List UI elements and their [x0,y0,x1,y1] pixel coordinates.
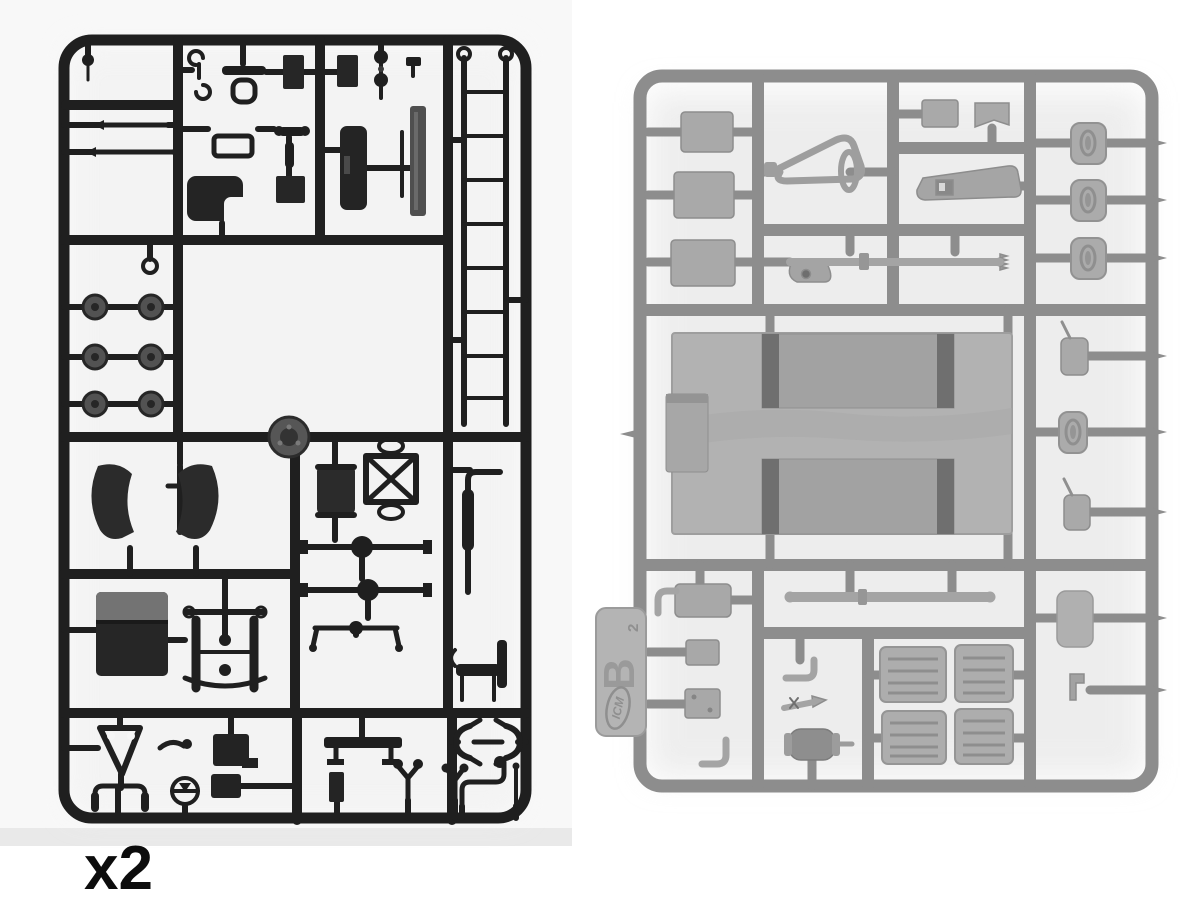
flat-panel [674,172,734,218]
muffler-cylinder [789,729,835,760]
instrument-box [276,176,305,203]
side-box [666,394,708,472]
muffler-box [675,584,731,617]
bench-seat [456,664,500,676]
tool-box [685,689,720,718]
running-board [324,737,402,748]
flat-panel [681,112,733,152]
hook-part [82,54,94,66]
product-photo: x2 2 B ICM [0,0,1200,900]
sprue-id-tab: 2 B ICM [595,608,646,736]
sprues-photo-graphic: x2 2 B ICM [0,0,1200,900]
sprue-letter: B [595,658,644,690]
pipe-collar [858,589,867,605]
t-bar-part [222,66,266,75]
mold-number: 2 [625,624,642,632]
mirror-part [1064,495,1090,530]
mirror-part [1061,338,1088,375]
differential [351,536,373,558]
hitch-cup [764,162,777,177]
radiator [317,466,355,514]
bench-backrest [497,640,507,688]
cargo-bed-floor-group [666,333,1012,534]
seat-pad-part [1057,591,1093,647]
flat-panel [671,240,735,286]
quantity-label: x2 [84,834,153,900]
